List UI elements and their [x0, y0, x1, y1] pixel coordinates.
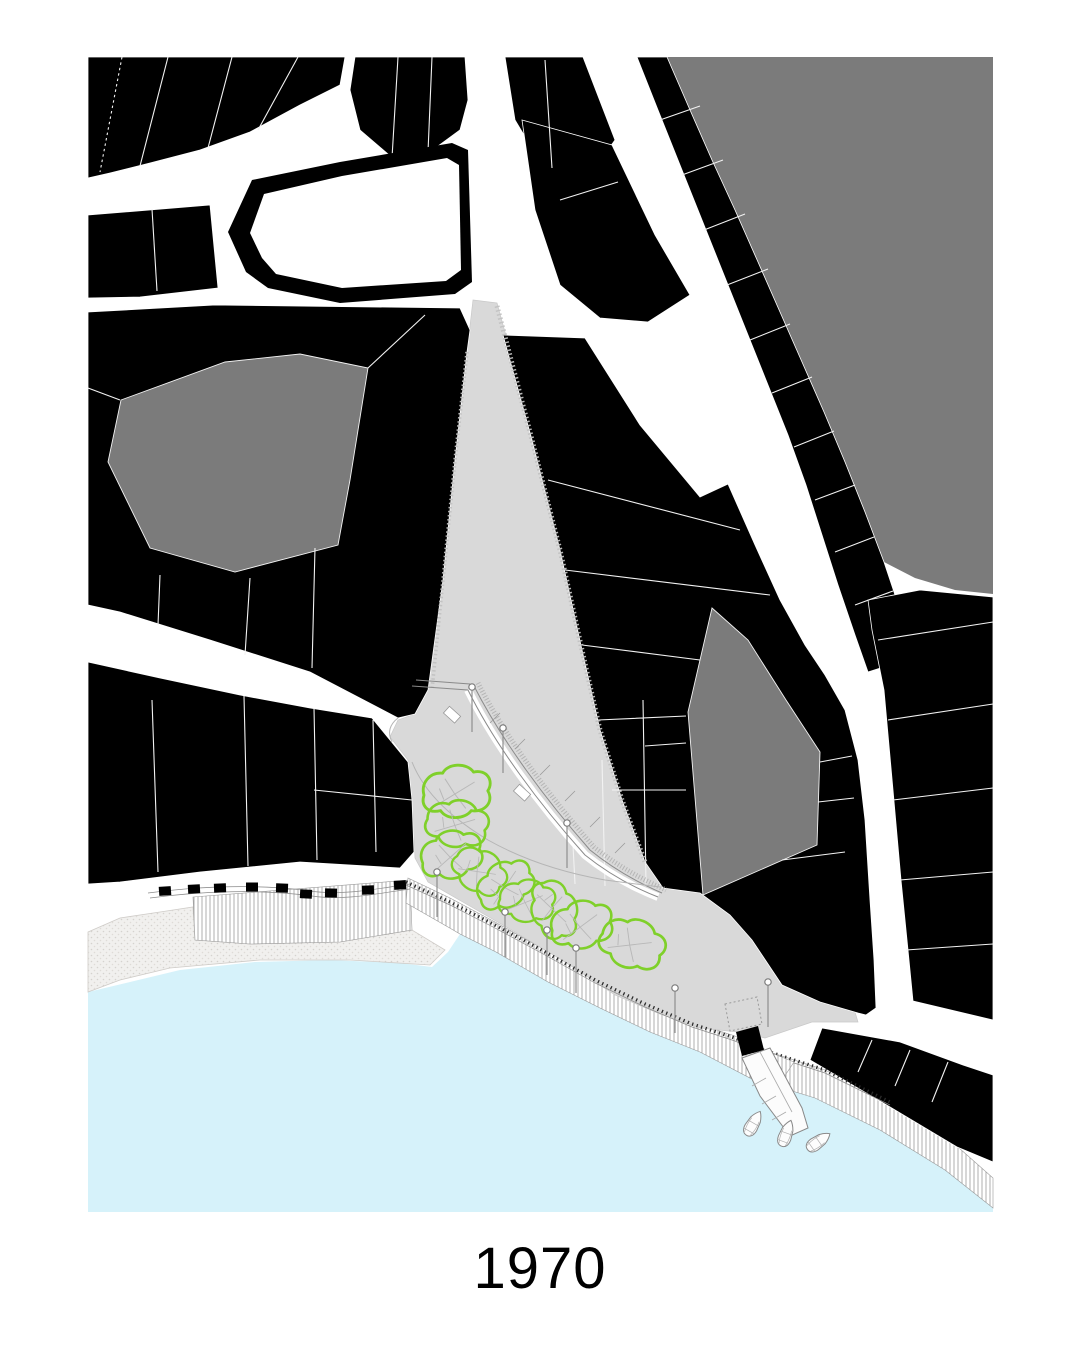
map-figure: 1970: [0, 0, 1080, 1350]
site-plan-map: [0, 0, 1080, 1350]
church-building: [228, 143, 472, 303]
poster-page: 1970: [0, 0, 1080, 1350]
map-caption: 1970: [0, 1238, 1080, 1300]
